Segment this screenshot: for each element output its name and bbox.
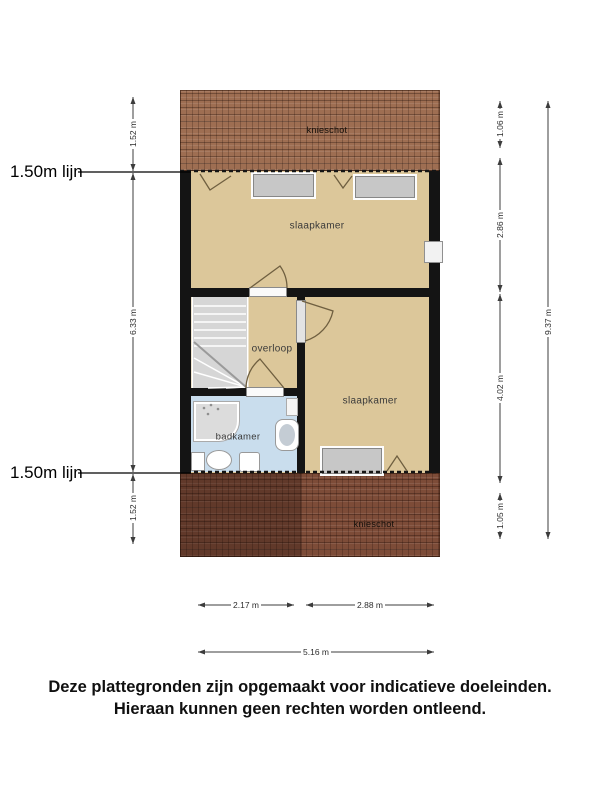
dim-right-seg1: 1.06 m [495,109,505,139]
disclaimer-line1: Deze plattegronden zijn opgemaakt voor i… [0,676,600,698]
room-label-bathroom: badkamer [216,432,261,443]
height-line-top-label: 1.50m lijn [10,162,83,182]
dim-left-middle: 6.33 m [128,307,138,337]
roof-bottom-shadow [180,473,302,557]
bath-side-panel [286,398,298,416]
wall-right [429,171,440,473]
dim-right-seg3: 4.02 m [495,373,505,403]
knieschot-top-label: knieschot [307,125,348,135]
dim-left-top: 1.52 m [128,119,138,149]
door-bedroom-top [249,287,287,297]
disclaimer-line2: Hieraan kunnen geen rechten worden ontle… [0,698,600,720]
toilet [206,450,232,470]
sink [239,452,260,472]
roof-window-bottom [322,448,382,474]
dim-left-bottom: 1.52 m [128,493,138,523]
dim-bottom-total: 5.16 m [301,647,331,657]
room-label-landing: overloop [252,344,293,355]
room-label-bedroom-top: slaapkamer [290,221,345,232]
door-bedroom-right [296,300,306,343]
wall-left [180,171,191,473]
dim-right-seg2: 2.86 m [495,210,505,240]
dim-right-seg4: 1.05 m [495,501,505,531]
floorplan-page: knieschot knieschot slaapkamer overloop … [0,0,600,800]
roof-window-top-1 [253,174,314,197]
bathtub-basin [279,424,295,446]
room-label-bedroom-right: slaapkamer [343,396,398,407]
dim-bottom-seg2: 2.88 m [355,600,385,610]
staircase [193,297,247,388]
side-window [424,241,443,263]
wall-bedroom-divider [191,288,429,297]
hand-basin [191,452,205,471]
height-line-bottom-label: 1.50m lijn [10,463,83,483]
knieschot-bottom-label: knieschot [354,519,395,529]
disclaimer: Deze plattegronden zijn opgemaakt voor i… [0,676,600,721]
door-bathroom [246,387,284,397]
dim-right-total: 9.37 m [543,307,553,337]
dim-bottom-seg1: 2.17 m [231,600,261,610]
roof-window-top-2 [355,176,415,198]
